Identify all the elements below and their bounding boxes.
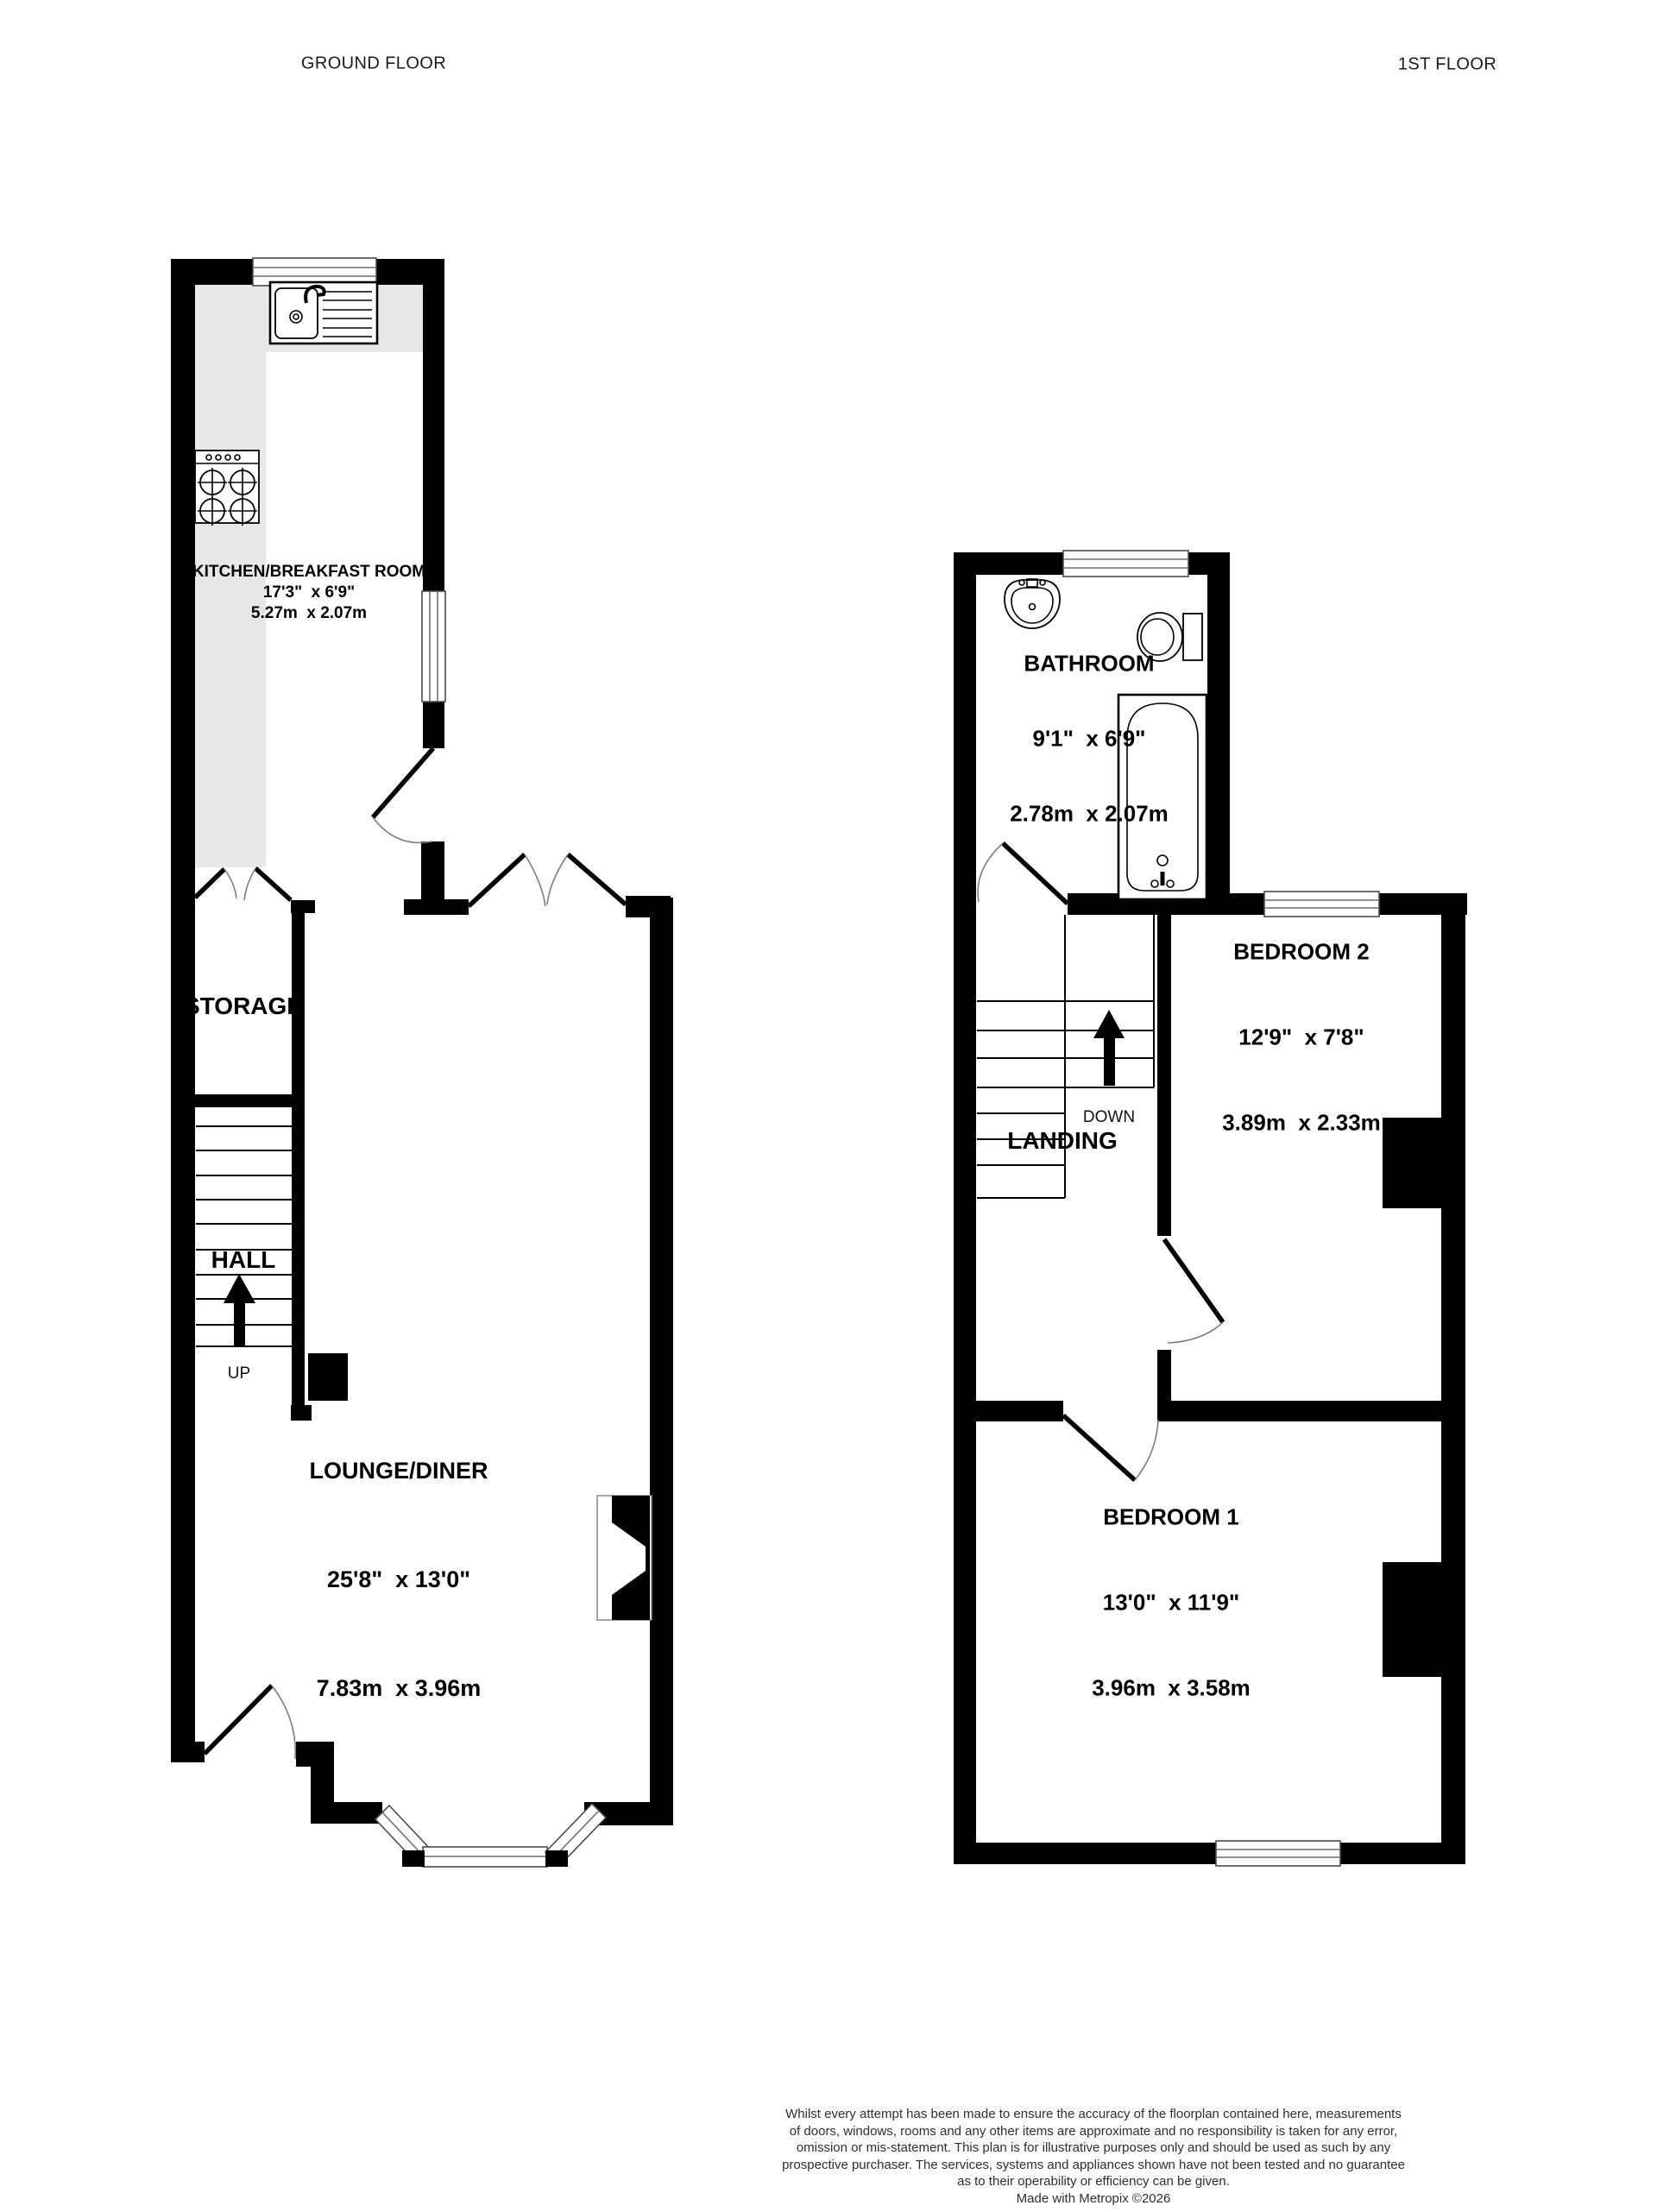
bathroom-window bbox=[1063, 551, 1188, 577]
kitchen-dim-imperial: 17'3" x 6'9" bbox=[263, 583, 355, 603]
lounge-dim-imperial: 25'8" x 13'0" bbox=[309, 1561, 488, 1598]
lounge-name: LOUNGE/DINER bbox=[309, 1453, 488, 1489]
disclaimer-line: as to their operability or efficiency ca… bbox=[671, 2173, 1516, 2190]
disclaimer-line: of doors, windows, rooms and any other i… bbox=[671, 2123, 1516, 2140]
bedroom2-door bbox=[1164, 1239, 1223, 1343]
bathroom-label: BATHROOM 9'1" x 6'9" 2.78m x 2.07m bbox=[1010, 602, 1169, 877]
storage-label: STORAGE bbox=[195, 990, 292, 1023]
bay-window bbox=[375, 1804, 606, 1867]
hall-label: HALL bbox=[211, 1246, 276, 1274]
landing-label: LANDING bbox=[1007, 1127, 1118, 1155]
front-door bbox=[205, 1686, 295, 1759]
lounge-label: LOUNGE/DINER 25'8" x 13'0" 7.83m x 3.96m bbox=[309, 1380, 488, 1779]
bedroom1-dim-metric: 3.96m x 3.58m bbox=[1092, 1674, 1251, 1703]
storage-doors bbox=[195, 868, 291, 900]
bedroom1-name: BEDROOM 1 bbox=[1092, 1503, 1251, 1532]
fireplace-icon bbox=[597, 1496, 652, 1620]
bathroom-dim-metric: 2.78m x 2.07m bbox=[1010, 802, 1169, 827]
up-label: UP bbox=[228, 1364, 250, 1383]
floorplan-drawing bbox=[0, 0, 1657, 2212]
bedroom1-window bbox=[1216, 1841, 1340, 1866]
bedroom2-chimney-breast bbox=[1383, 1118, 1441, 1208]
metropix-credit: Made with Metropix ©2026 bbox=[671, 2190, 1516, 2208]
bedroom2-label: BEDROOM 2 12'9" x 7'8" 3.89m x 2.33m bbox=[1222, 881, 1381, 1194]
kitchen-side-window bbox=[422, 591, 445, 702]
kitchen-back-door bbox=[373, 748, 433, 842]
stove-icon bbox=[195, 451, 259, 526]
kitchen-dim-metric: 5.27m x 2.07m bbox=[251, 603, 367, 624]
disclaimer: Whilst every attempt has been made to en… bbox=[671, 2106, 1516, 2207]
landing-stairs bbox=[977, 915, 1154, 1198]
disclaimer-line: prospective purchaser. The services, sys… bbox=[671, 2157, 1516, 2174]
bedroom1-label: BEDROOM 1 13'0" x 11'9" 3.96m x 3.58m bbox=[1092, 1446, 1251, 1760]
lounge-dim-metric: 7.83m x 3.96m bbox=[309, 1670, 488, 1706]
bathroom-name: BATHROOM bbox=[1010, 652, 1169, 677]
kitchen-french-doors bbox=[469, 854, 626, 906]
bathroom-dim-imperial: 9'1" x 6'9" bbox=[1010, 727, 1169, 752]
bedroom1-dim-imperial: 13'0" x 11'9" bbox=[1092, 1589, 1251, 1617]
bedroom2-dim-metric: 3.89m x 2.33m bbox=[1222, 1109, 1381, 1138]
bedroom1-chimney-breast bbox=[1383, 1562, 1441, 1677]
disclaimer-line: Whilst every attempt has been made to en… bbox=[671, 2106, 1516, 2123]
sink-icon bbox=[270, 282, 377, 343]
kitchen-name: KITCHEN/BREAKFAST ROOM bbox=[195, 562, 423, 583]
up-arrow-icon bbox=[224, 1274, 255, 1346]
bedroom2-name: BEDROOM 2 bbox=[1222, 938, 1381, 967]
storage-name: STORAGE bbox=[195, 992, 292, 1021]
floorplan-page: GROUND FLOOR 1ST FLOOR bbox=[0, 0, 1657, 2212]
down-arrow-icon bbox=[1093, 1010, 1125, 1086]
bedroom2-dim-imperial: 12'9" x 7'8" bbox=[1222, 1024, 1381, 1052]
down-label: DOWN bbox=[1083, 1108, 1135, 1127]
disclaimer-line: omission or mis-statement. This plan is … bbox=[671, 2140, 1516, 2157]
kitchen-label: KITCHEN/BREAKFAST ROOM 17'3" x 6'9" 5.27… bbox=[195, 559, 423, 627]
